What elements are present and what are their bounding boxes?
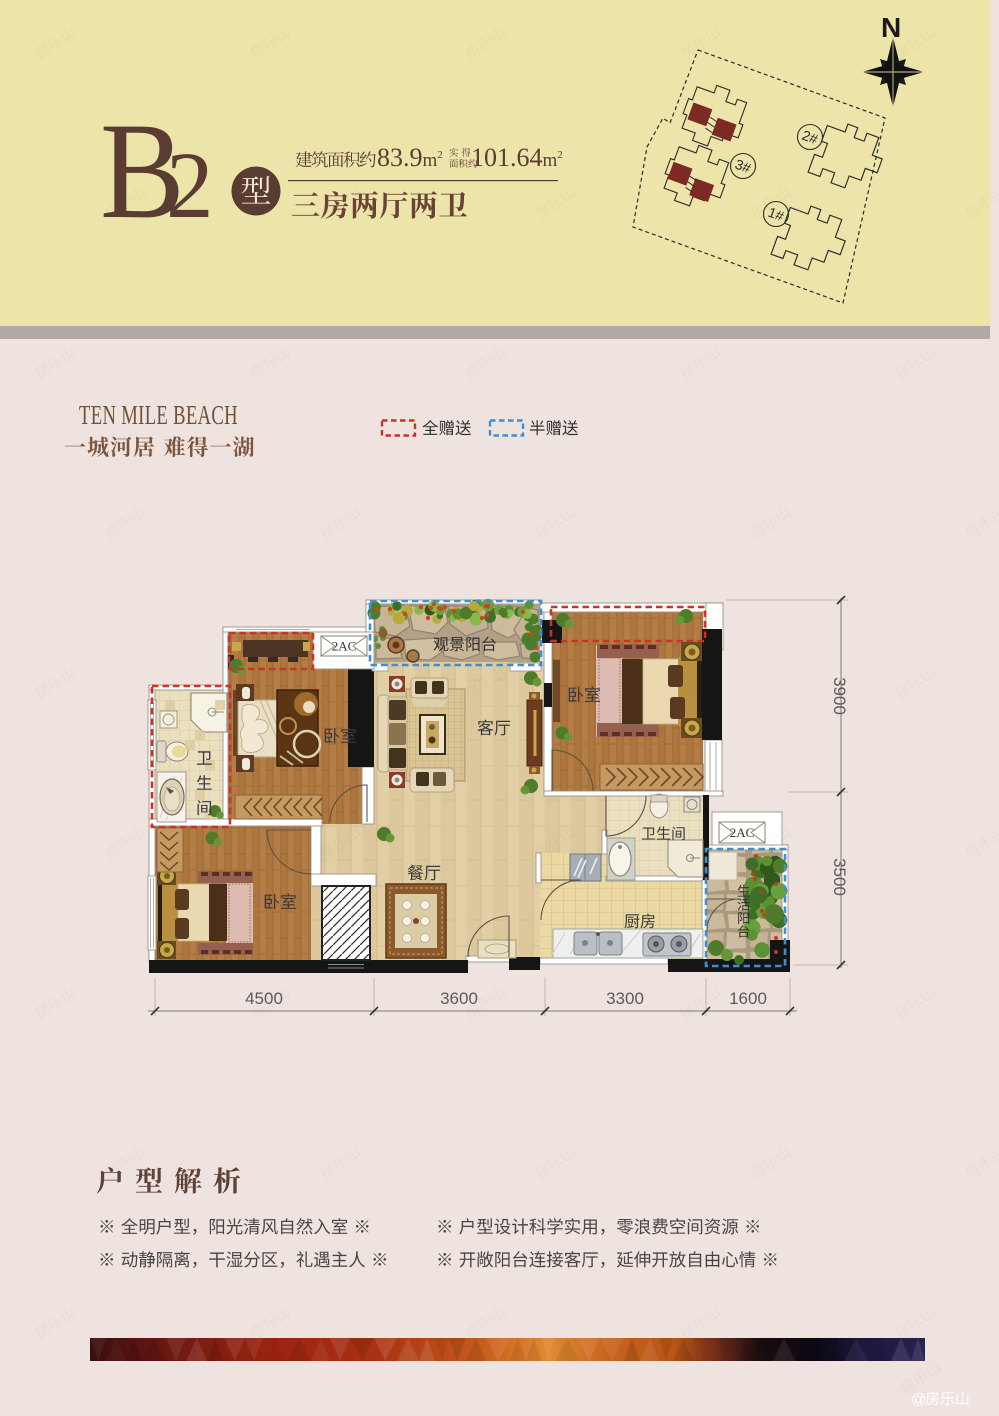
svg-text:@: @	[911, 1391, 926, 1408]
svg-text:2AC: 2AC	[730, 825, 755, 840]
svg-text:4500: 4500	[245, 989, 283, 1008]
svg-text:TEN MILE BEACH: TEN MILE BEACH	[79, 401, 238, 431]
svg-text:2AC: 2AC	[332, 639, 357, 654]
svg-text:N: N	[881, 12, 901, 43]
svg-text:1600: 1600	[729, 989, 767, 1008]
svg-text:3900: 3900	[830, 677, 849, 715]
svg-text:3300: 3300	[606, 989, 644, 1008]
svg-text:3500: 3500	[830, 858, 849, 896]
